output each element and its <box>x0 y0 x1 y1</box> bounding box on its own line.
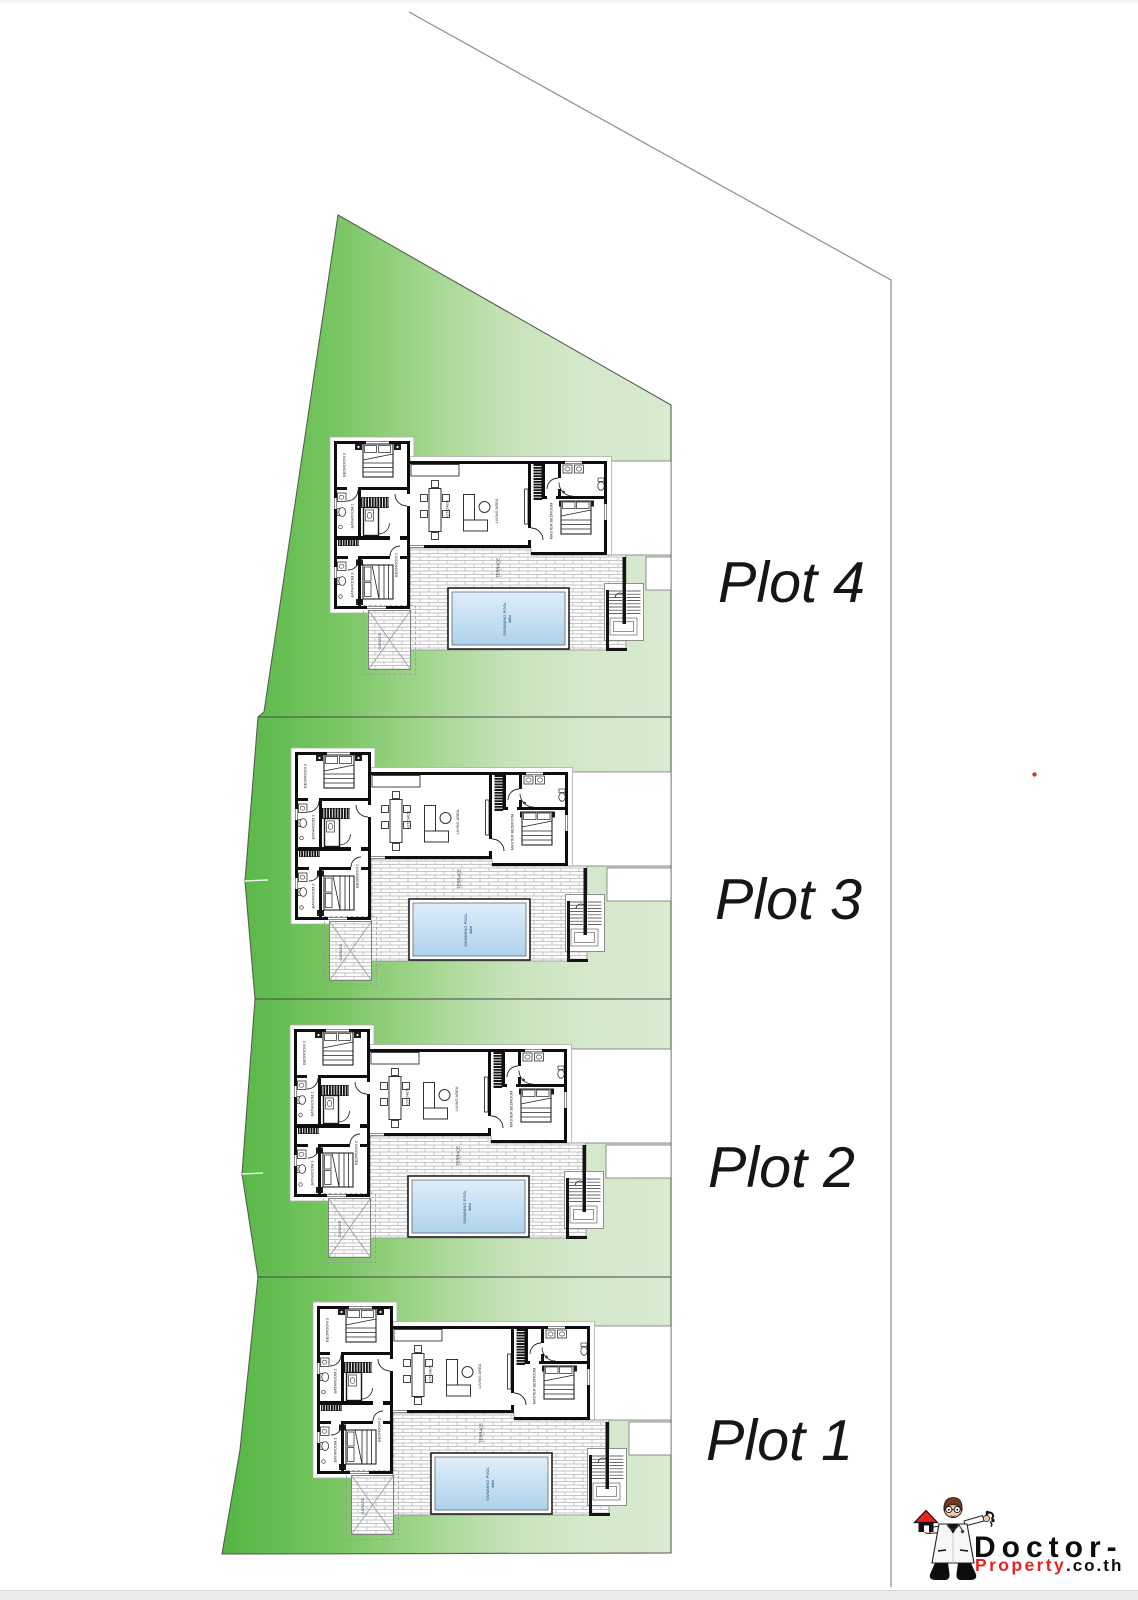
svg-text:Plot 1: Plot 1 <box>706 1409 853 1473</box>
svg-text:Property: Property <box>975 1555 1066 1575</box>
svg-text:Plot 4: Plot 4 <box>718 551 865 615</box>
svg-text:Plot 2: Plot 2 <box>708 1136 855 1200</box>
svg-text:Plot 3: Plot 3 <box>715 868 862 932</box>
svg-text:.co.th: .co.th <box>1066 1556 1123 1575</box>
